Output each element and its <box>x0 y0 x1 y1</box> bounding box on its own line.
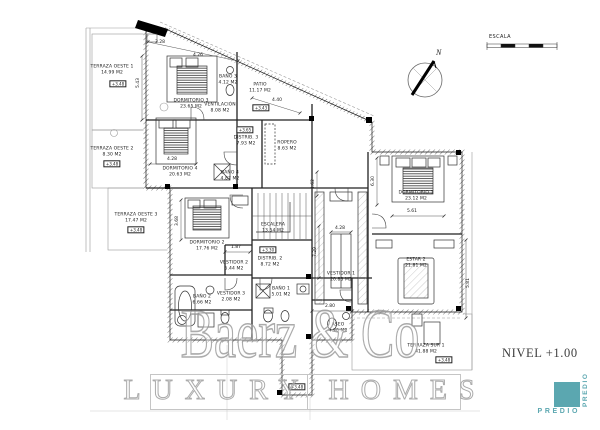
plan-label: DORMITORIO 2 17.76 M2 <box>189 240 224 251</box>
predio-logo-text: PREDIO <box>524 408 580 415</box>
plan-label: +3.43 <box>252 104 269 111</box>
predio-logo-icon <box>554 382 580 407</box>
plan-label: 4.40 <box>272 98 282 104</box>
plan-label: DISTRIB. 2 8.72 M2 <box>258 256 283 267</box>
plan-label: +3.48 <box>103 160 120 167</box>
plan-label: 5.81 <box>466 278 472 288</box>
plan-label: VESTIDOR 2 5.44 M2 <box>220 260 248 271</box>
plan-label: ESTAR 2 21.81 M2 <box>405 257 427 268</box>
plan-label: +3.48 <box>109 80 126 87</box>
plan-label: 7.29 <box>313 247 319 257</box>
watermark-frame-bottom <box>150 409 460 410</box>
north-arrow-icon <box>408 61 442 97</box>
watermark-brand: Baerz & Co <box>181 292 420 373</box>
plan-label: +3.48 <box>127 226 144 233</box>
north-label: N <box>436 48 441 57</box>
plan-label: VENTILACIÓN 8.08 M2 <box>204 102 235 113</box>
scale-bar <box>487 42 557 50</box>
scale-label: ESCALA <box>489 34 511 40</box>
plan-label: +3.65 <box>236 126 253 133</box>
plan-label: 1.62 <box>311 179 317 189</box>
plan-label: DORMITORIO 1 23.12 M2 <box>398 190 433 201</box>
plan-label: DISTRIB. 3 7.93 M2 <box>234 135 259 146</box>
plan-label: 4.26 <box>193 53 203 59</box>
plan-label: VESTIDOR 1 20.83 M2 <box>327 271 355 282</box>
plan-label: 3.68 <box>175 216 181 226</box>
plan-label: ROPERO 8.63 M2 <box>277 140 297 151</box>
plan-label: TERRAZA OESTE 2 8.30 M2 <box>91 146 134 157</box>
plan-label: 4.28 <box>167 157 177 163</box>
plan-label: TERRAZA OESTE 1 14.99 M2 <box>91 64 134 75</box>
plan-label: PATIO 11.17 M2 <box>249 82 271 93</box>
plan-label: DORMITORIO 4 20.63 M2 <box>162 166 197 177</box>
plan-label: 5.43 <box>136 78 142 88</box>
plan-label: TERRAZA OESTE 3 17.47 M2 <box>115 212 158 223</box>
predio-logo-vertical-text: PREDIO <box>582 382 592 407</box>
plan-label: 4.28 <box>335 226 345 232</box>
plan-label: +3.30 <box>259 246 276 253</box>
floorplan-page: TERRAZA OESTE 1 14.99 M2+3.48TERRAZA OES… <box>0 0 600 430</box>
watermark-tagline: LUXURY HOMES <box>123 375 486 407</box>
plan-label: +3.48 <box>435 356 452 363</box>
door-swings <box>191 107 386 302</box>
plan-label: ESCALERA 13.54 M2 <box>261 222 285 233</box>
plan-label: 3.28 <box>155 40 165 46</box>
plan-label: 1.87 <box>231 245 241 251</box>
level-label: NIVEL +1.00 <box>502 346 578 361</box>
plan-label: BAÑO 3 4.12 M2 <box>219 74 238 85</box>
plan-label: BAÑO 4 4.87 M2 <box>221 170 240 181</box>
plan-label: 5.61 <box>407 209 417 215</box>
plan-label: 6.30 <box>371 176 377 186</box>
